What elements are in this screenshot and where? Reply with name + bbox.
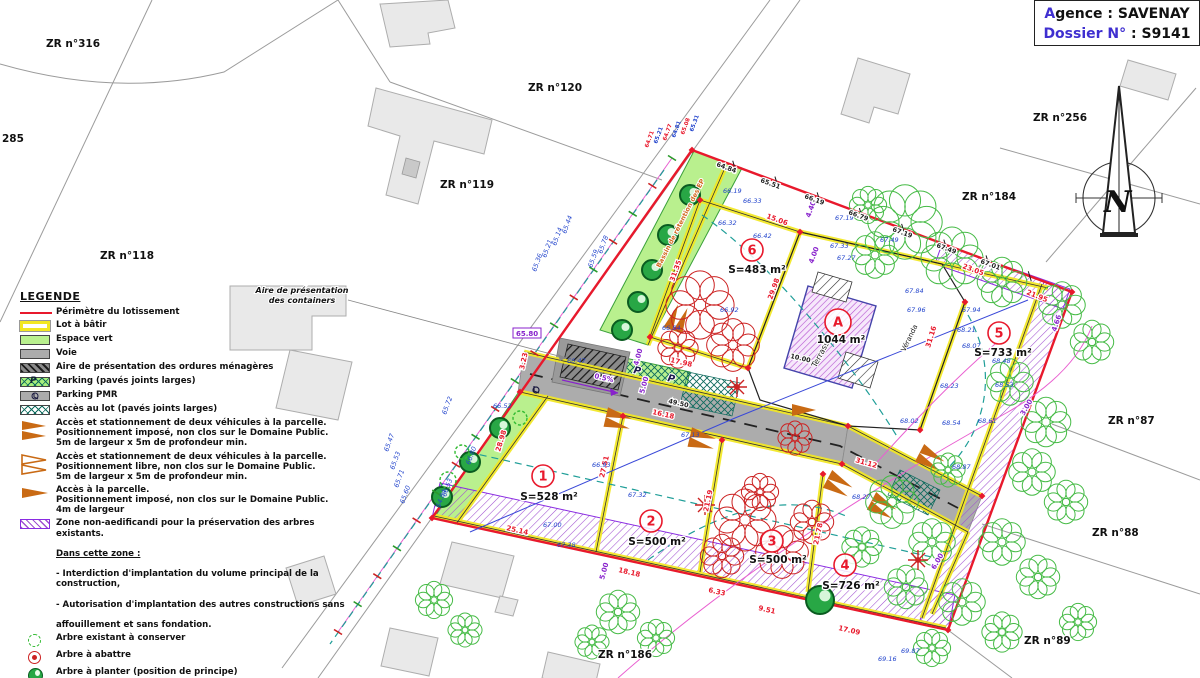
lot-number: 4 [840, 559, 849, 574]
lot-number: 6 [747, 244, 756, 259]
spot-elevation: 66.19 [723, 187, 742, 195]
legend-item-arbre-abattre: Arbre à abattre [20, 650, 358, 664]
existing-tree-cloud [596, 590, 639, 633]
tree-to-cut-cloud [790, 500, 833, 543]
parcel-label: ZR n°256 [1033, 112, 1087, 124]
arbre-planter-swatch [28, 668, 43, 678]
spot-elevation: 68.54 [942, 419, 961, 427]
legend-item-acces-parcelle: Accès à la parcelle. Positionnement impo… [20, 485, 358, 515]
legend-item-acces-impose: Accès et stationnement de deux véhicules… [20, 418, 358, 448]
existing-tree-cloud [868, 185, 942, 259]
existing-tree-cloud [979, 519, 1026, 566]
flag-dimension: 65.31 [689, 114, 701, 133]
street-survey-tick [472, 434, 480, 439]
acces-lot-swatch [20, 405, 50, 415]
spot-elevation: 66.84 [662, 324, 681, 332]
spot-elevation: 66.33 [743, 197, 762, 205]
title-block: Agence : SAVENAY Dossier N° : S9141 [1034, 0, 1200, 46]
spot-elevation: 68.23 [940, 382, 959, 390]
spot-elevation: 66.92 [720, 306, 739, 314]
lot-number: 5 [994, 327, 1003, 342]
street-survey-tick [648, 183, 656, 188]
street-survey-tick [629, 211, 637, 216]
dimension-purple: 5.00 [598, 562, 610, 581]
legend-item-parking-pmr: Parking PMR [20, 390, 358, 401]
spot-elevation: 65.47 [382, 432, 396, 453]
spot-elevation: 67.32 [628, 491, 647, 499]
lot-area: S=528 m² [520, 491, 578, 503]
lot-swatch [20, 321, 50, 331]
wheelchair-icon [30, 391, 40, 401]
spot-elevation: 65.60 [398, 484, 412, 504]
acces-impose-symbol [20, 419, 50, 443]
legend-item-lot: Lot à bâtir [20, 320, 358, 331]
parcel-label: ZR n°89 [1024, 635, 1071, 647]
spot-elevation: 68.27 [852, 493, 871, 501]
tree-to-cut-conifer [908, 550, 928, 570]
parcel-label: ZR n°120 [528, 82, 582, 94]
dimension-red: 18.18 [618, 566, 641, 579]
parcel-label: ZR n°184 [962, 191, 1016, 203]
parcel-label: ZR n°316 [46, 38, 100, 50]
dossier-line: Dossier N° : S9141 [1035, 24, 1199, 44]
street-survey-tick [668, 156, 676, 161]
parcel-label: ZR n°119 [440, 179, 494, 191]
pmr-swatch [20, 391, 50, 401]
zone-non-aedificandi-swatch [20, 519, 50, 529]
parcel-label: ZR n°118 [100, 250, 154, 262]
street-survey-tick [452, 462, 460, 467]
legend-item-perimetre: Périmètre du lotissement [20, 307, 358, 317]
spot-elevation: 67.38 [557, 541, 576, 549]
lot-number: A [833, 316, 843, 331]
existing-tree-cloud [982, 612, 1022, 652]
parcel-label: ZR n°186 [598, 649, 652, 661]
street-survey-tick [511, 379, 519, 384]
parcel-label: ZR n°87 [1108, 415, 1155, 427]
spot-elevation: 67.33 [830, 242, 849, 250]
spot-elevation: 66.42 [753, 232, 772, 240]
aire-ordures-swatch [20, 363, 50, 373]
spot-elevation: 67.27 [837, 254, 856, 262]
legend-item-arbre-planter: Arbre à planter (position de principe) [20, 667, 358, 678]
street-survey-tick [550, 323, 558, 328]
lot-number: 1 [538, 470, 547, 485]
dimension-red: 17.09 [838, 624, 861, 637]
parking-swatch: P [20, 377, 50, 387]
spot-elevation: 69.87 [901, 647, 920, 655]
spot-elevation: 69.16 [878, 655, 897, 663]
arbre-existant-swatch [28, 634, 41, 647]
dimension-red: 6.33 [708, 586, 727, 598]
parcel-label: 285 [2, 133, 24, 145]
street-survey-tick [373, 574, 381, 579]
spot-elevation: 66.47 [567, 357, 586, 365]
spot-elevation: 67.96 [907, 306, 926, 314]
spot-elevation: 65.78 [596, 234, 610, 254]
lot-number: 3 [767, 535, 776, 550]
dimension-red: 9.51 [758, 604, 777, 616]
spot-elevation: 68.87 [952, 463, 971, 471]
spot-elevation: 68.61 [978, 417, 997, 425]
spot-elevation: 66.32 [718, 219, 737, 227]
spot-elevation: 67.13 [681, 431, 700, 439]
parcel-label: ZR n°88 [1092, 527, 1139, 539]
espace-vert-swatch [20, 335, 50, 345]
legend-item-acces-libre: Accès et stationnement de deux véhicules… [20, 452, 358, 482]
street-survey-tick [609, 239, 617, 244]
spot-elevation: 65.44 [560, 214, 574, 234]
spot-elevation: 65.72 [440, 395, 454, 415]
dimension-black: 65.51 [759, 176, 782, 191]
spot-elevation: 65.53 [388, 450, 402, 470]
lot-label: 1S=528 m² [520, 465, 578, 503]
plan-label: Véranda [900, 323, 920, 352]
legend-item-voie: Voie [20, 348, 358, 359]
spot-elevation: 68.21 [957, 326, 976, 334]
lot-label: 6S=483 m² [728, 239, 786, 276]
lot-area: S=500 m² [749, 554, 807, 566]
legend: LEGENDE Périmètre du lotissement Lot à b… [20, 290, 358, 678]
tree-to-cut-cloud [741, 473, 778, 510]
perimeter-swatch [20, 312, 52, 314]
voie-swatch [20, 349, 50, 359]
legend-item-zone-non-aedificandi: Zone non-aedificandi pour la préservatio… [20, 518, 358, 630]
lot-area: S=733 m² [974, 347, 1032, 359]
lot-area: S=500 m² [628, 536, 686, 548]
legend-item-parking: P Parking (pavés joints larges) [20, 376, 358, 387]
existing-tree-cloud [415, 581, 452, 618]
lot-area: S=483 m² [728, 264, 786, 276]
lot-number: 2 [646, 515, 655, 530]
acces-libre-symbol [20, 453, 50, 477]
lot-area: S=726 m² [822, 580, 880, 592]
legend-item-aire-ordures: Aire de présentation des ordures ménagèr… [20, 362, 358, 373]
street-survey-tick [570, 295, 578, 300]
tree-to-plant [628, 292, 648, 312]
legend-item-acces-lot: Accès au lot (pavés joints larges) [20, 404, 358, 415]
lot-area: 1044 m² [817, 334, 866, 346]
tree-to-cut-conifer [727, 377, 747, 397]
agency-line: Agence : SAVENAY [1035, 4, 1199, 24]
spot-elevation: 67.00 [543, 521, 562, 529]
legend-title: LEGENDE [20, 290, 358, 303]
street-survey-tick [393, 546, 401, 551]
spot-elevation: 67.84 [905, 287, 924, 295]
north-letter: N [1103, 185, 1133, 220]
existing-tree-cloud [1044, 480, 1087, 523]
arbre-abattre-swatch [28, 651, 41, 664]
existing-tree-cloud [1009, 449, 1056, 496]
site-plan-page: N 28.9827.5125.1418.186.339.5117.0921.78… [0, 0, 1200, 678]
dimension-purple: 4.00 [807, 246, 820, 265]
legend-item-espace-vert: Espace vert [20, 334, 358, 345]
spot-elevation: 67.94 [962, 306, 981, 314]
spot-elevation: 66.93 [592, 461, 611, 469]
spot-elevation: 67.49 [880, 236, 899, 244]
legend-item-arbre-existant: Arbre existant à conserver [20, 633, 358, 647]
street-survey-tick [413, 518, 421, 523]
project-level-value: 65.80 [516, 330, 538, 338]
acces-parcelle-symbol [20, 486, 50, 500]
existing-tree-cloud [448, 613, 482, 647]
spot-elevation: 68.02 [900, 417, 919, 425]
spot-elevation: 66.52 [493, 402, 512, 410]
tree-to-plant [612, 320, 632, 340]
existing-tree-cloud [1016, 555, 1059, 598]
spot-elevation: 68.53 [995, 381, 1014, 389]
